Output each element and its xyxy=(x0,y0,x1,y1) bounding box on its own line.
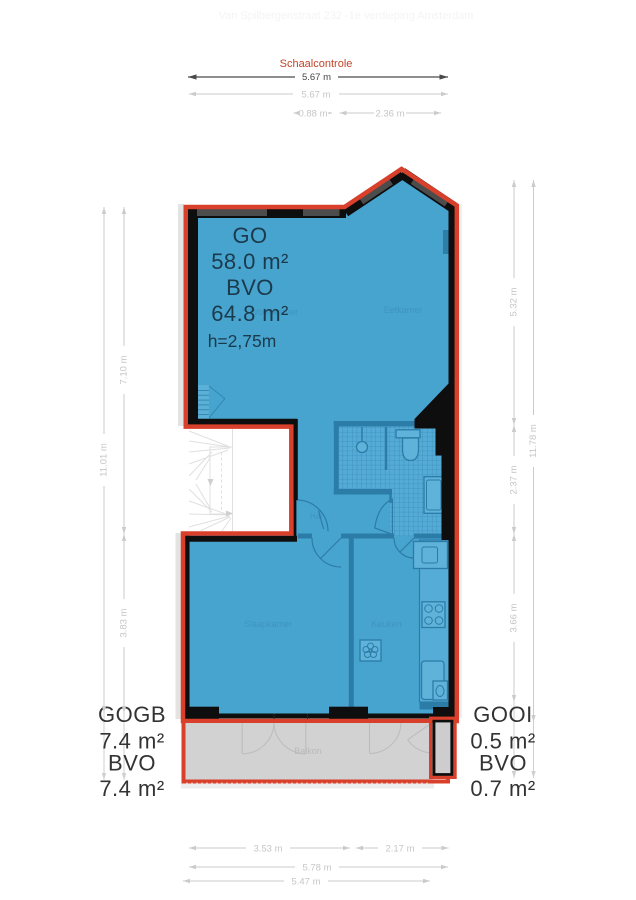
svg-text:2.36 m: 2.36 m xyxy=(375,109,404,120)
svg-text:3.83 m: 3.83 m xyxy=(119,608,130,637)
svg-text:Keuken: Keuken xyxy=(371,619,402,629)
svg-text:GOOI: GOOI xyxy=(473,702,532,727)
svg-text:7.10 m: 7.10 m xyxy=(119,355,130,384)
svg-text:5.32 m: 5.32 m xyxy=(509,287,520,316)
svg-text:BVO: BVO xyxy=(479,751,527,776)
svg-text:5.67 m: 5.67 m xyxy=(302,72,331,83)
svg-text:58.0 m²: 58.0 m² xyxy=(211,249,288,274)
svg-text:7.4 m²: 7.4 m² xyxy=(99,776,164,801)
svg-text:Van Spilbergenstraat 232 -1e v: Van Spilbergenstraat 232 -1e verdieping … xyxy=(219,10,474,22)
svg-text:Eetkamer: Eetkamer xyxy=(384,305,423,315)
svg-text:h=2,75m: h=2,75m xyxy=(208,331,277,351)
svg-text:Hal: Hal xyxy=(310,512,322,521)
svg-text:3.66 m: 3.66 m xyxy=(509,603,520,632)
svg-text:GOGB: GOGB xyxy=(98,702,166,727)
svg-text:5.67 m: 5.67 m xyxy=(301,90,330,101)
svg-text:BVO: BVO xyxy=(226,275,274,300)
svg-text:2.17 m: 2.17 m xyxy=(385,844,414,855)
svg-text:11.01 m: 11.01 m xyxy=(99,443,110,477)
svg-text:64.8 m²: 64.8 m² xyxy=(211,301,288,326)
svg-text:2.37 m: 2.37 m xyxy=(509,465,520,494)
svg-text:Balkon: Balkon xyxy=(294,746,322,756)
svg-text:Schaalcontrole: Schaalcontrole xyxy=(280,58,353,70)
svg-text:GO: GO xyxy=(232,223,267,248)
svg-text:Slaapkamer: Slaapkamer xyxy=(244,619,292,629)
svg-text:11.78 m: 11.78 m xyxy=(528,424,539,458)
svg-text:5.78 m: 5.78 m xyxy=(302,863,331,874)
svg-text:0.7 m²: 0.7 m² xyxy=(470,776,535,801)
svg-text:0.88 m: 0.88 m xyxy=(298,109,327,120)
svg-text:BVO: BVO xyxy=(108,751,156,776)
svg-text:3.53 m: 3.53 m xyxy=(253,844,282,855)
svg-text:5.47 m: 5.47 m xyxy=(291,877,320,888)
